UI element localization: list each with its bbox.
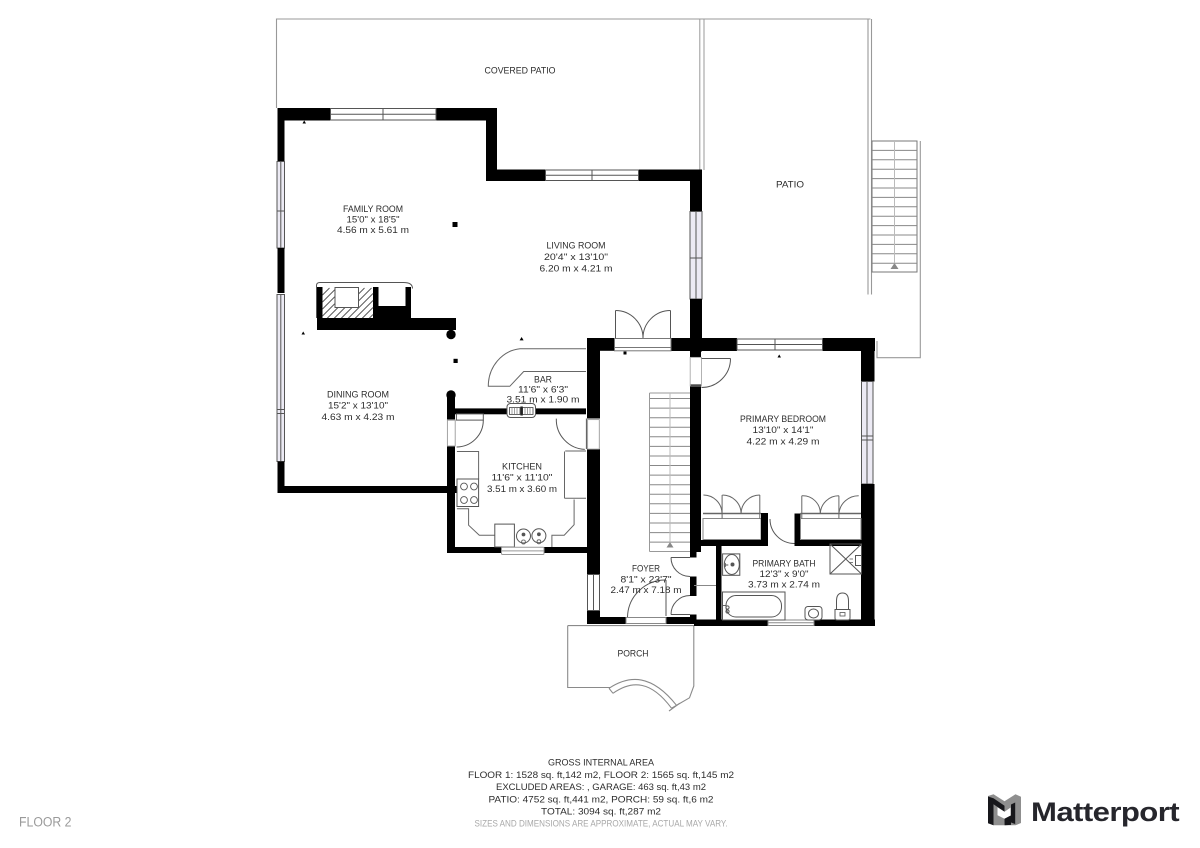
svg-text:2.47 m x 7.18 m: 2.47 m x 7.18 m	[611, 584, 682, 595]
svg-text:4.56 m x 5.61 m: 4.56 m x 5.61 m	[337, 224, 409, 235]
svg-text:COVERED PATIO: COVERED PATIO	[485, 65, 556, 76]
svg-text:FOYER: FOYER	[632, 563, 660, 574]
svg-text:PORCH: PORCH	[618, 648, 649, 659]
svg-text:FAMILY ROOM: FAMILY ROOM	[343, 203, 403, 214]
svg-text:4.22 m x 4.29 m: 4.22 m x 4.29 m	[747, 436, 820, 447]
svg-text:20'4" x 13'10": 20'4" x 13'10"	[544, 251, 608, 262]
svg-text:FLOOR 2: FLOOR 2	[19, 815, 72, 830]
svg-text:15'2" x 13'10": 15'2" x 13'10"	[328, 400, 388, 411]
svg-text:EXCLUDED AREAS: , GARAGE: 463: EXCLUDED AREAS: , GARAGE: 463 sq. ft,43 …	[496, 781, 706, 792]
svg-text:8'1" x 23'7": 8'1" x 23'7"	[621, 574, 672, 585]
svg-text:6.20 m x 4.21 m: 6.20 m x 4.21 m	[540, 263, 613, 274]
svg-text:3.51 m x 1.90 m: 3.51 m x 1.90 m	[507, 394, 580, 405]
svg-text:Matterport: Matterport	[1031, 797, 1180, 827]
svg-text:FLOOR 1: 1528 sq. ft,142 m2, F: FLOOR 1: 1528 sq. ft,142 m2, FLOOR 2: 15…	[468, 769, 734, 780]
svg-text:PATIO: PATIO	[776, 179, 804, 190]
svg-text:11'6" x 11'10": 11'6" x 11'10"	[492, 472, 553, 483]
svg-text:TOTAL: 3094 sq. ft,287 m2: TOTAL: 3094 sq. ft,287 m2	[541, 806, 661, 817]
svg-text:SIZES AND DIMENSIONS ARE APPRO: SIZES AND DIMENSIONS ARE APPROXIMATE, AC…	[475, 818, 728, 829]
svg-text:KITCHEN: KITCHEN	[502, 461, 542, 472]
svg-text:PATIO: 4752 sq. ft,441 m2, POR: PATIO: 4752 sq. ft,441 m2, PORCH: 59 sq.…	[489, 794, 714, 805]
svg-text:3.73 m x 2.74 m: 3.73 m x 2.74 m	[748, 579, 820, 590]
svg-text:13'10" x 14'1": 13'10" x 14'1"	[753, 424, 814, 435]
svg-text:DINING ROOM: DINING ROOM	[327, 389, 389, 400]
svg-text:LIVING ROOM: LIVING ROOM	[547, 240, 606, 251]
svg-text:12'3" x 9'0": 12'3" x 9'0"	[760, 568, 809, 579]
svg-text:3.51 m x 3.60 m: 3.51 m x 3.60 m	[487, 483, 557, 494]
svg-text:4.63 m x 4.23 m: 4.63 m x 4.23 m	[322, 411, 395, 422]
svg-text:15'0" x 18'5": 15'0" x 18'5"	[347, 214, 400, 225]
svg-text:PRIMARY BEDROOM: PRIMARY BEDROOM	[740, 413, 826, 424]
svg-text:PRIMARY BATH: PRIMARY BATH	[753, 558, 816, 569]
svg-text:GROSS INTERNAL AREA: GROSS INTERNAL AREA	[548, 757, 655, 768]
